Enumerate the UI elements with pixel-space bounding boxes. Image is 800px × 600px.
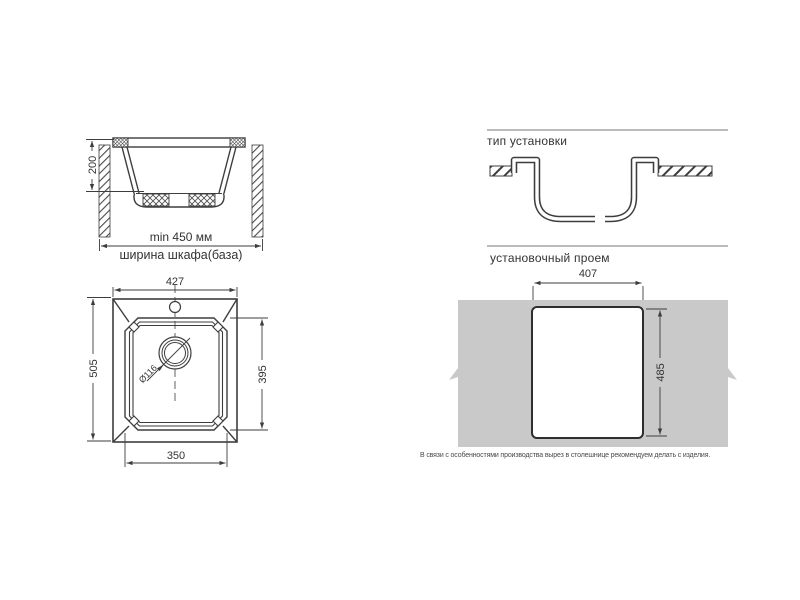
sink-profile-left [514, 160, 595, 219]
dim-depth-200: 200 [87, 156, 99, 174]
cabinet-wall-left [99, 145, 110, 237]
sink-rim-tab-left [113, 138, 128, 147]
sink-rim-section [113, 138, 245, 147]
sink-installation-drawing: 200 min 450 мм ширина шкафа(база) 427 [0, 0, 800, 600]
dim-505: 505 [88, 359, 100, 377]
dim-407: 407 [579, 268, 597, 280]
countertop-left-hatch [490, 166, 512, 176]
sink-base-pad-right [189, 194, 215, 206]
cutout-opening [532, 307, 643, 438]
production-note: В связи с особенностями производства выр… [420, 452, 790, 459]
dim-350: 350 [167, 450, 185, 462]
dim-485: 485 [655, 363, 667, 381]
sink-bowl-walls [122, 147, 236, 197]
install-type-title: тип установки [487, 134, 567, 148]
dim-395: 395 [257, 365, 269, 383]
sink-rim-tab-right [230, 138, 245, 147]
sink-base-pad-left [143, 194, 169, 206]
sink-profile-left-core [514, 160, 595, 219]
cabinet-width-caption: ширина шкафа(база) [120, 248, 243, 262]
dim-drain-diameter: Ø116 [137, 363, 159, 385]
cutout-view: 407 485 [449, 268, 737, 447]
dim-min-450: min 450 мм [150, 230, 213, 244]
sink-profile-right-core [605, 160, 656, 219]
drawing-canvas: 200 min 450 мм ширина шкафа(база) 427 [0, 0, 800, 600]
faucet-hole [170, 302, 181, 313]
sink-top-view: 427 Ø116 505 395 35 [87, 276, 269, 467]
cutout-title: установочный проем [490, 251, 610, 265]
countertop-right-hatch [658, 166, 712, 176]
cabinet-section-view: 200 min 450 мм ширина шкафа(база) [86, 138, 263, 262]
cabinet-wall-right [252, 145, 263, 237]
